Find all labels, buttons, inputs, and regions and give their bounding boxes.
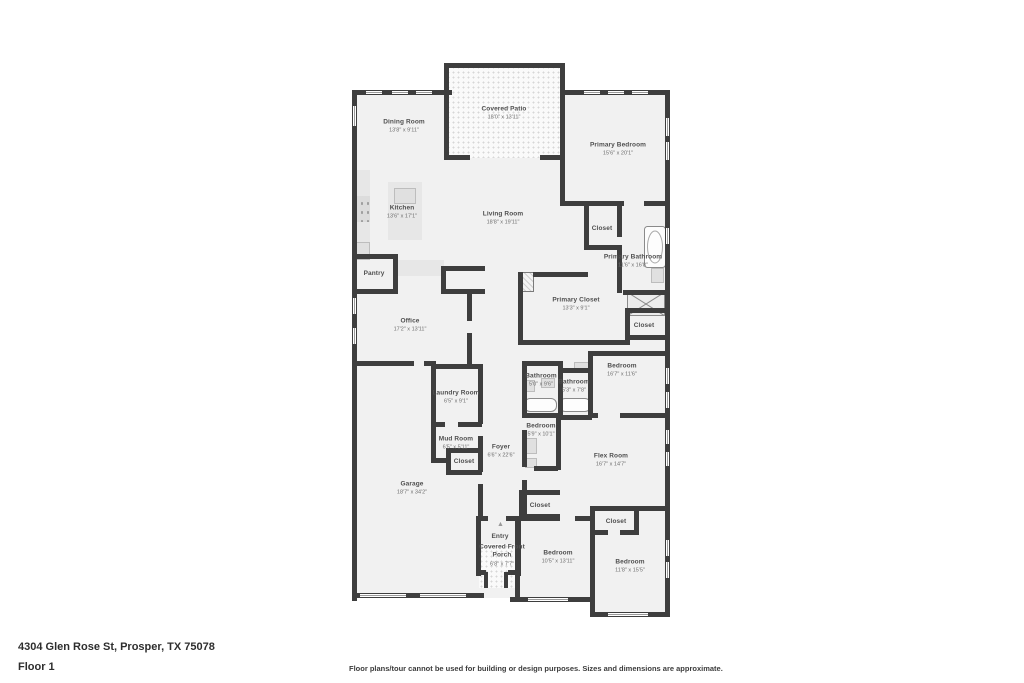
room-label-laundry-room: Laundry Room6'5" x 9'1" [432,390,479,407]
wall [634,506,639,534]
wall [584,205,589,250]
wall [590,506,670,511]
wall [519,490,560,495]
window [608,613,648,616]
room-label-primary-closet: Primary Closet13'3" x 9'1" [552,297,599,314]
wall [478,516,488,521]
wall [467,291,472,321]
wall [625,335,670,340]
wall [352,90,357,601]
wall [560,63,565,160]
window [666,142,669,160]
wall [556,415,592,420]
room-label-bathroom-2: Bathroom5'3" x 7'8" [558,379,590,396]
window [528,598,568,601]
room-label-covered-patio: Covered Patio18'0" x 13'11" [481,106,526,123]
wall [478,484,483,520]
address-text: 4304 Glen Rose St, Prosper, TX 75078 [18,641,215,653]
window [666,228,669,244]
wall [424,361,436,366]
window [608,91,624,94]
wall [467,333,472,365]
window [666,118,669,136]
window [353,298,356,314]
wall [515,516,560,521]
room-label-covered-front-porch: Covered Front Porch6'8" x 7'7" [479,543,525,568]
room-label-garage: Garage18'7" x 34'2" [397,481,427,498]
wall [431,364,482,369]
room-label-primary-bathroom: Primary Bathroom11'6" x 16'8" [604,254,662,271]
wall [620,413,670,418]
wall [588,413,598,418]
wall [352,254,397,259]
wall [444,63,565,68]
wall [446,470,482,475]
wall [594,530,608,535]
wall [560,201,624,206]
wall [441,289,485,294]
room-label-living-room: Living Room18'8" x 19'11" [483,211,523,228]
wall [534,466,558,471]
room-label-closet-hall: Closet [592,225,612,233]
wall [556,415,561,470]
wall [617,205,622,237]
window [392,91,408,94]
window [666,368,669,384]
wall [625,308,670,313]
wall [518,272,523,344]
window [360,594,406,597]
window [666,562,669,578]
window [366,91,382,94]
room-label-entry: Entry [491,533,508,541]
room-label-kitchen: Kitchen13'6" x 17'1" [387,205,417,222]
window [666,452,669,466]
wall [623,290,670,295]
floor-label: Floor 1 [18,661,55,673]
room-label-bedroom-ne: Bedroom16'7" x 11'6" [607,363,637,380]
wall [444,63,449,160]
wall [393,254,398,294]
wall [484,572,488,588]
bathtub-icon-3 [559,398,591,412]
wall [644,201,670,206]
room-label-pantry: Pantry [364,270,385,278]
room-label-bathroom-1: Bathroom5'0" x 9'6" [525,373,557,390]
wall [518,340,630,345]
room-label-foyer: Foyer6'6" x 22'6" [487,444,514,461]
room-label-bedroom-bm: Bedroom10'5" x 13'11" [542,550,575,567]
window [632,91,648,94]
room-label-bedroom-br: Bedroom11'8" x 15'5" [615,559,645,576]
window [666,392,669,408]
window [353,328,356,344]
kitchen-counter-2 [398,260,444,276]
wall [558,368,592,373]
wall [533,272,588,277]
window [584,91,600,94]
room-label-primary-bedroom: Primary Bedroom15'6" x 20'1" [590,142,646,159]
wall [441,266,485,271]
room-label-flex-room: Flex Room16'7" x 14'7" [594,453,628,470]
wall [522,361,527,418]
wall [588,351,670,356]
room-label-mud-room: Mud Room6'5" x 5'11" [439,436,473,453]
room-label-closet-bm: Closet [530,502,550,510]
room-label-closet-bath: Closet [634,322,654,330]
room-label-bedroom-mid: Bedroom5'9" x 10'1" [526,423,555,440]
room-label-dining-room: Dining Room13'8" x 9'11" [383,119,425,136]
wall [590,506,595,616]
disclaimer-text: Floor plans/tour cannot be used for buil… [349,664,723,673]
wall [478,436,483,472]
range-icon [394,188,416,204]
floor-plan: ▲ Dining Room13'8" x 9'11" Covered Patio… [0,0,1024,683]
wall [431,422,436,462]
wall [522,361,562,366]
window [353,106,356,126]
entry-arrow-icon: ▲ [497,521,504,528]
wall [352,361,414,366]
cooktop-icon [357,196,370,222]
window [420,594,466,597]
bathtub-icon-2 [524,398,557,412]
room-label-closet-br: Closet [606,518,626,526]
wall [444,155,470,160]
room-label-office: Office17'2" x 13'11" [394,318,427,335]
wall [504,572,508,588]
wall [352,289,397,294]
window [666,540,669,556]
window [666,430,669,444]
room-label-closet-mud: Closet [454,458,474,466]
window [416,91,432,94]
wall [560,155,565,205]
